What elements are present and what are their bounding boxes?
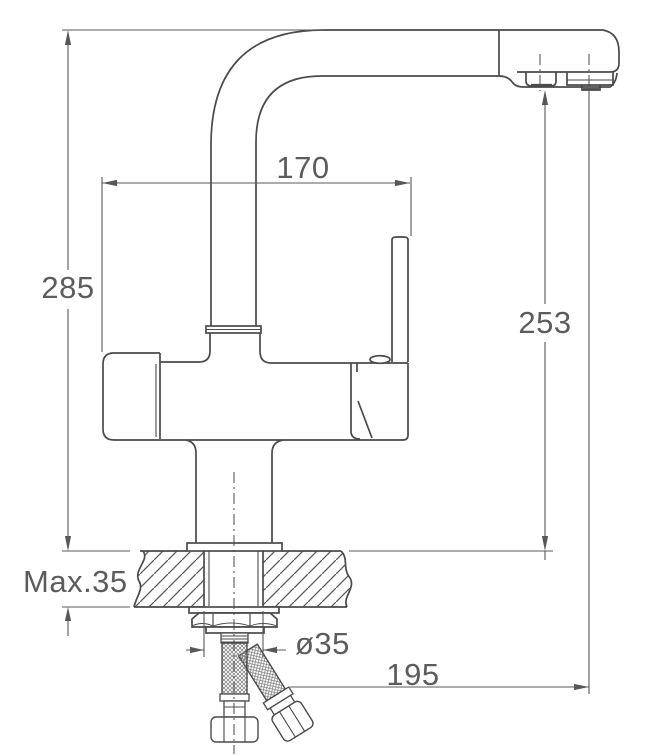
aerator-pure-outlet <box>526 72 556 86</box>
countertop-section <box>134 551 352 607</box>
dimension-label-spout-reach: 170 <box>261 152 345 183</box>
faucet-body <box>114 326 408 440</box>
spout-head <box>499 30 619 87</box>
lever-handle <box>351 237 408 439</box>
technical-drawing-canvas: 285 170 253 Max.35 ø35 195 <box>0 0 645 756</box>
dimension-label-outlet-height: 253 <box>503 307 587 338</box>
gooseneck-spout <box>211 30 499 326</box>
side-valve-block <box>103 353 160 440</box>
dimension-label-mounting-hole-diameter: ø35 <box>295 628 350 659</box>
dimension-label-max-counter-thickness: Max.35 <box>23 566 128 597</box>
dimension-label-overall-height: 285 <box>26 272 110 303</box>
dimension-label-hose-extent: 195 <box>371 659 455 690</box>
